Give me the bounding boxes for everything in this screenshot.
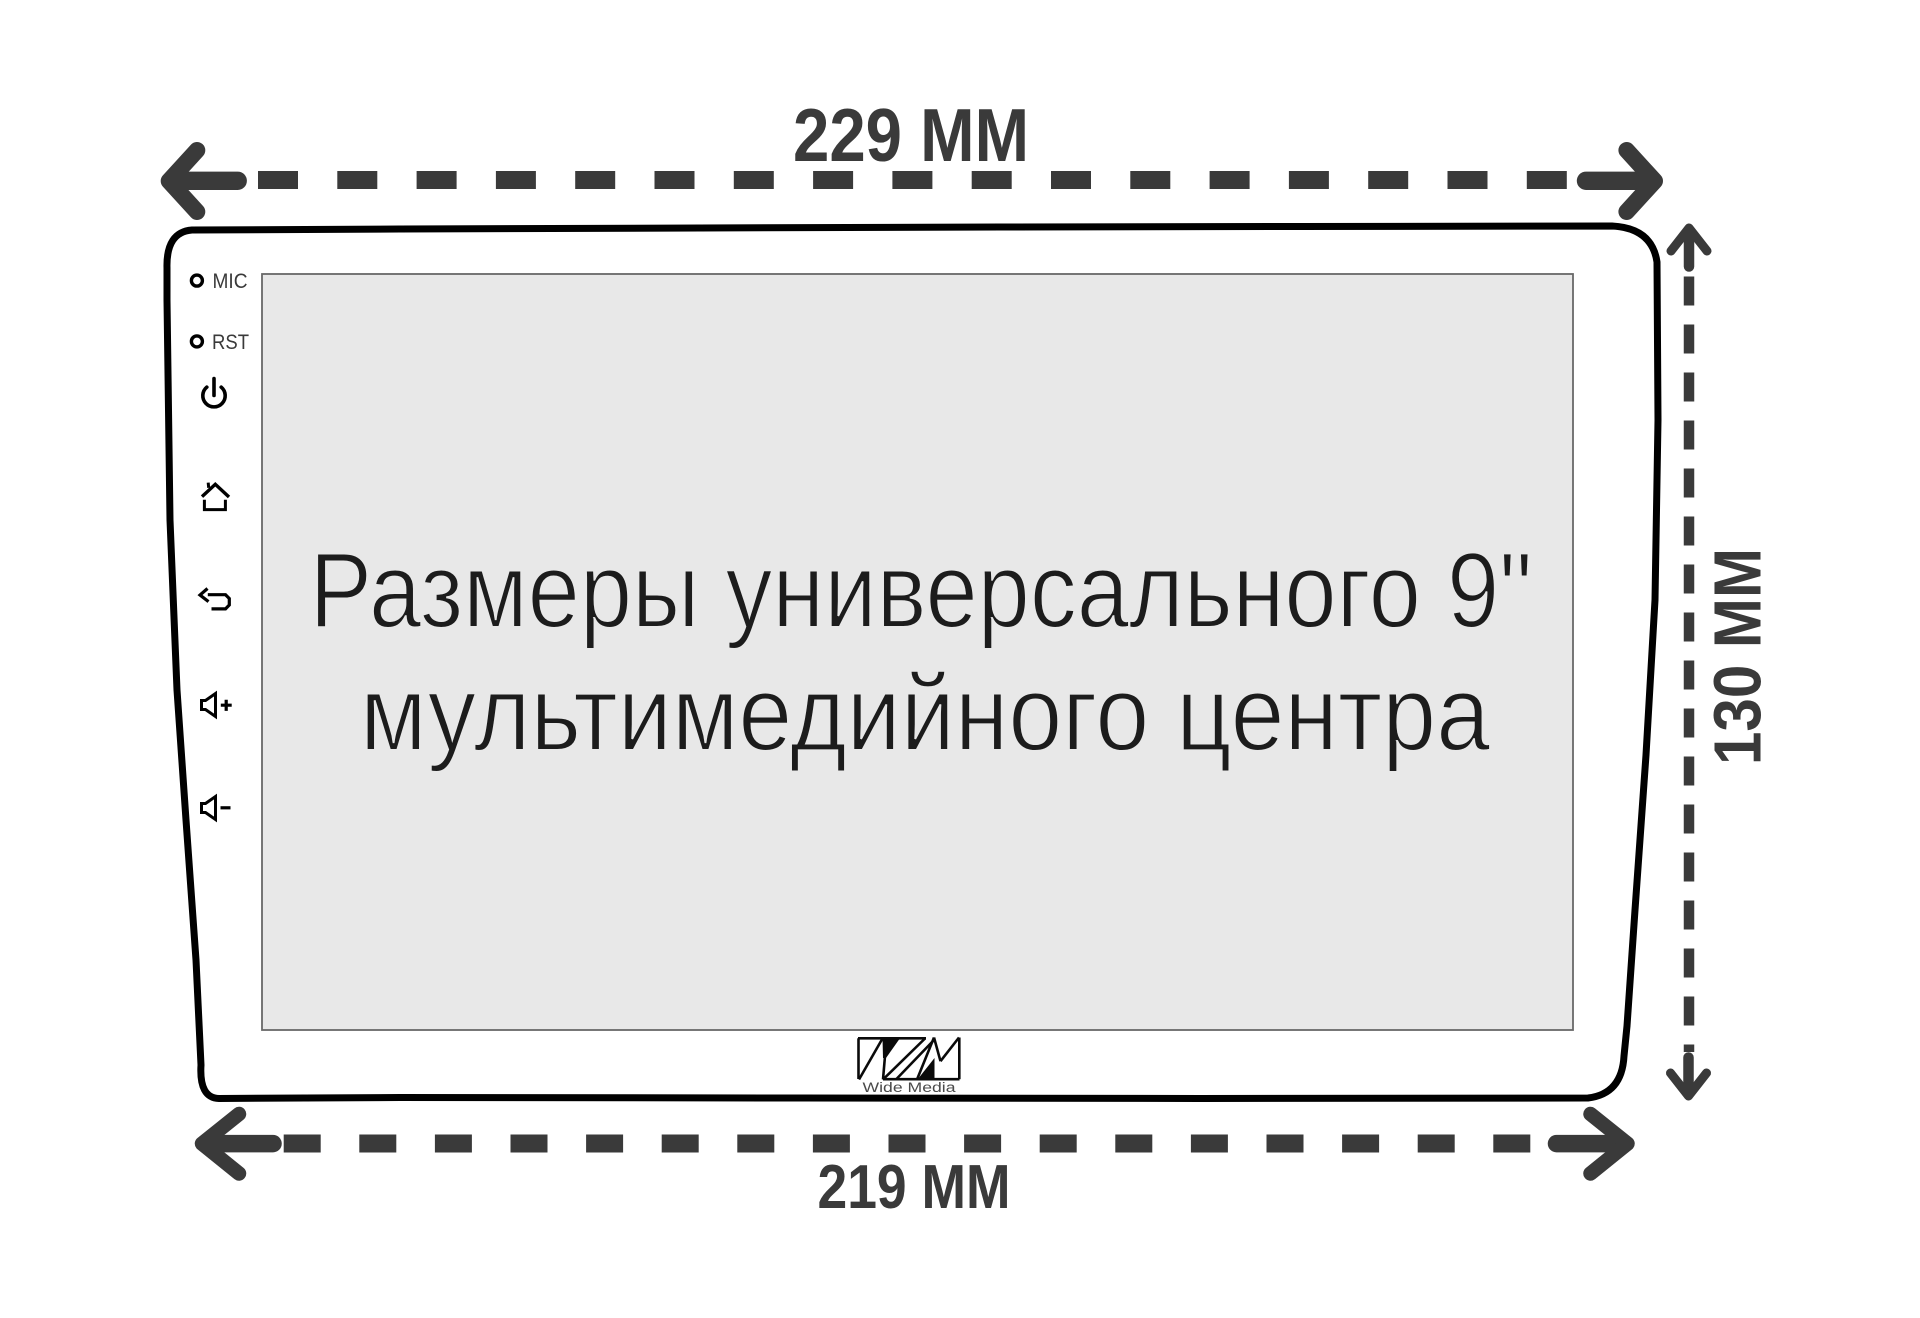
svg-text:MIC: MIC <box>213 269 248 293</box>
svg-text:Размеры универсального 9": Размеры универсального 9" <box>310 530 1533 650</box>
svg-text:229 ММ: 229 ММ <box>793 93 1029 177</box>
svg-text:219 ММ: 219 ММ <box>818 1153 1011 1222</box>
svg-text:мультимедийного центра: мультимедийного центра <box>360 653 1490 773</box>
svg-text:Wide Media: Wide Media <box>863 1080 957 1095</box>
svg-text:130 ММ: 130 ММ <box>1701 548 1776 765</box>
svg-text:RST: RST <box>212 330 249 354</box>
